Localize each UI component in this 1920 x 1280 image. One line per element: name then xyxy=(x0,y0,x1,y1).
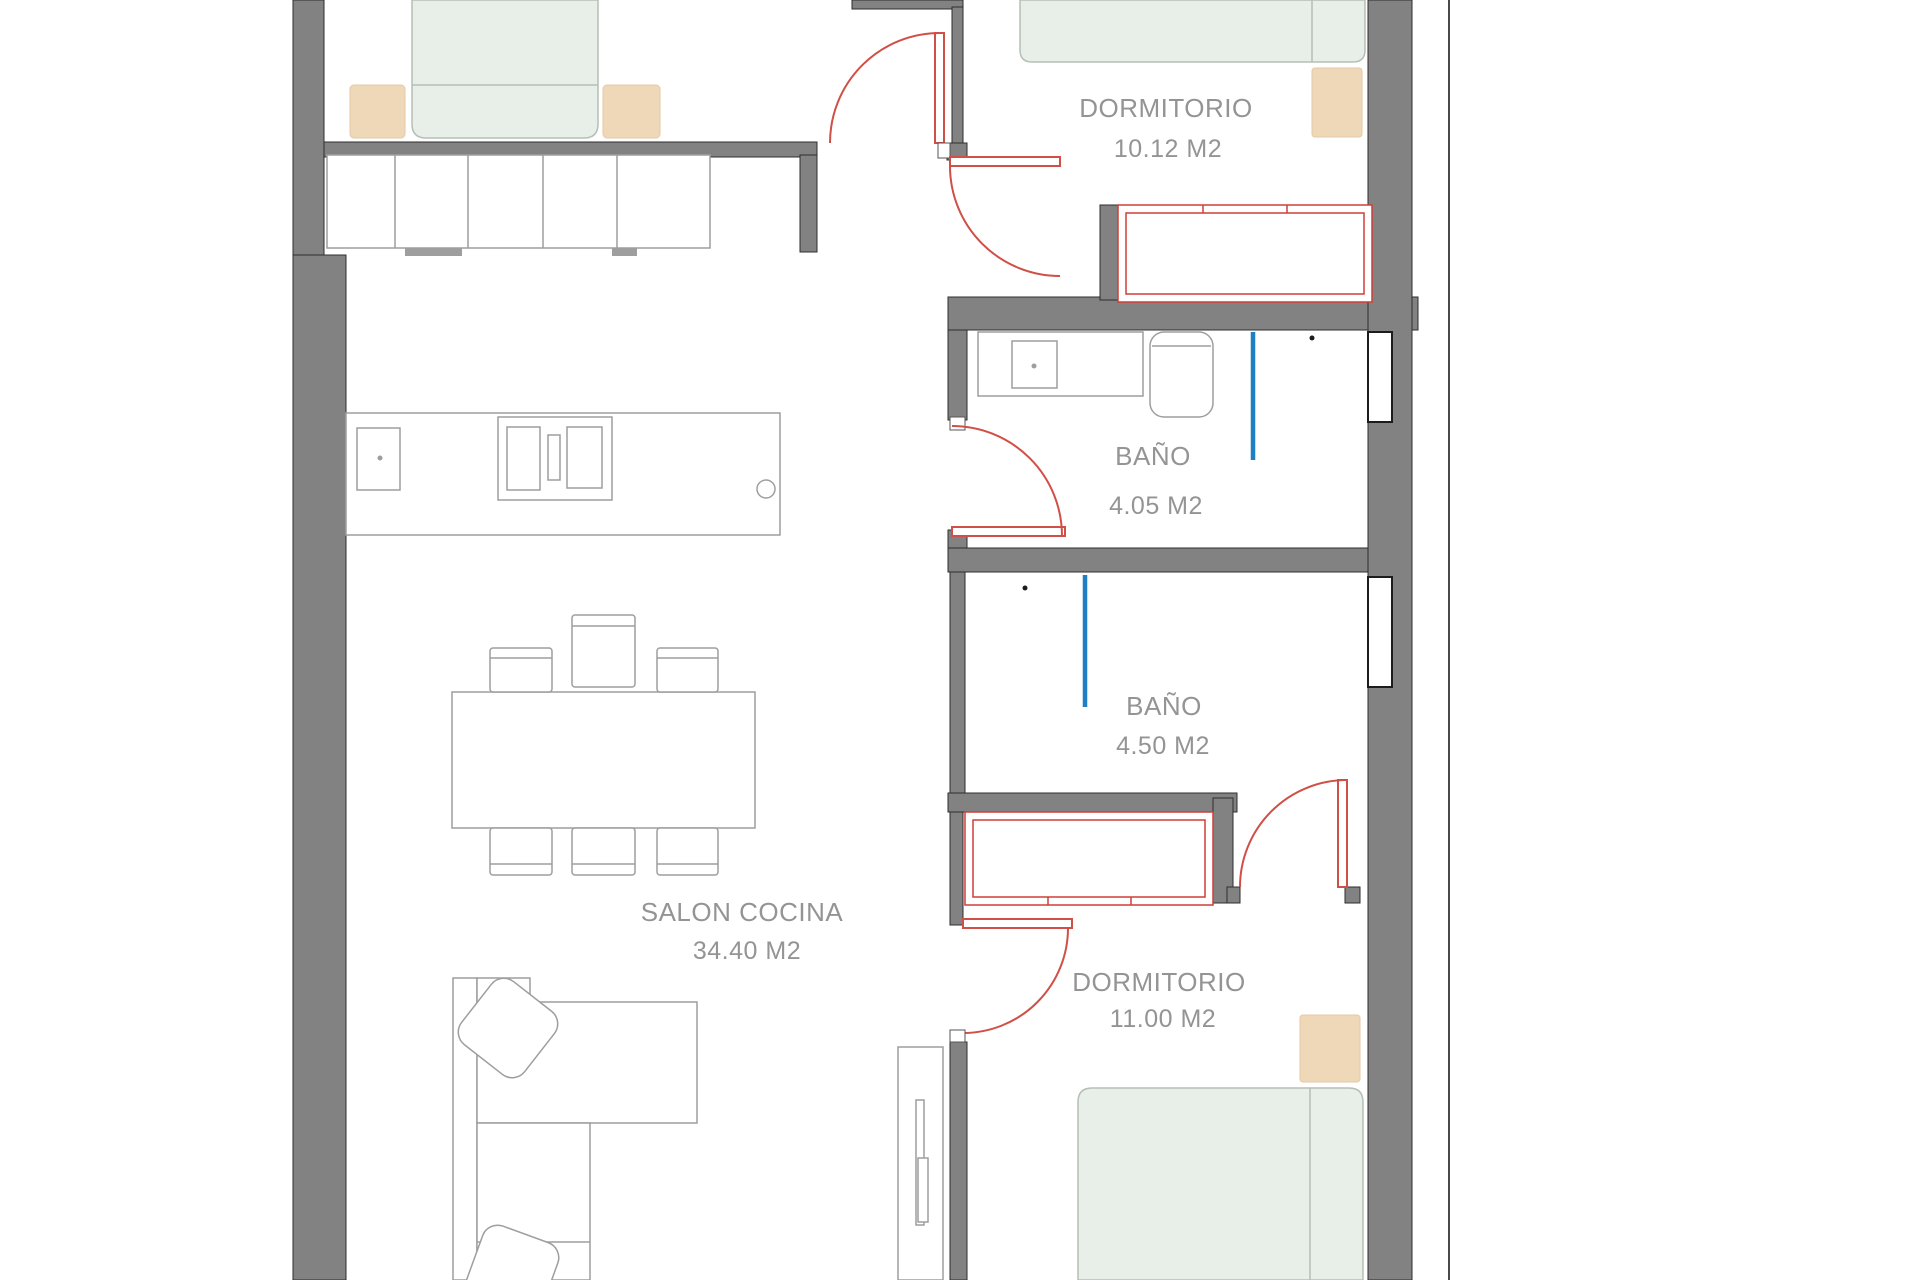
drain-dot xyxy=(1023,586,1028,591)
wall-top-band xyxy=(852,0,963,9)
window xyxy=(1368,577,1392,687)
nightstand xyxy=(603,85,660,138)
sofa xyxy=(452,972,697,1280)
room-label: BAÑO xyxy=(1126,691,1202,721)
washbasin-counter xyxy=(978,332,1143,396)
door-leaf-bathroom1 xyxy=(952,527,1065,536)
room-label: DORMITORIO xyxy=(1072,967,1246,997)
nightstand xyxy=(1312,68,1362,137)
nightstand xyxy=(350,85,405,138)
floor-plan-drawing: DORMITORIO 10.12 M2 BAÑO 4.05 M2 BAÑO 4.… xyxy=(0,0,1920,1280)
nightstand xyxy=(1300,1015,1360,1082)
closet-handle xyxy=(405,248,462,256)
room-area-label: 11.00 M2 xyxy=(1110,1005,1216,1033)
dining-table xyxy=(452,692,755,828)
drain-dot xyxy=(1310,336,1315,341)
wall-stub-vestibule-west xyxy=(800,155,817,252)
bed xyxy=(1078,1088,1363,1280)
chair xyxy=(490,648,552,692)
door-swing-dormitorio2 xyxy=(1240,780,1347,887)
wall-salon-bath2 xyxy=(950,572,965,793)
room-label: SALON COCINA xyxy=(641,897,844,927)
wardrobe-red-inner xyxy=(973,820,1205,897)
door-leaf-salon-corridor xyxy=(963,919,1072,928)
window xyxy=(1368,332,1392,422)
room-area-label: 34.40 M2 xyxy=(693,937,801,965)
wall-left-lower xyxy=(293,255,346,1280)
dining-set xyxy=(452,615,755,875)
sink-basin-right xyxy=(567,427,602,488)
sink-basin-left xyxy=(507,427,540,490)
bed xyxy=(1020,0,1365,62)
door-jamb xyxy=(950,1030,965,1042)
sink-divider xyxy=(548,435,560,480)
floor-plan-page: DORMITORIO 10.12 M2 BAÑO 4.05 M2 BAÑO 4.… xyxy=(0,0,1920,1280)
wardrobe-closet xyxy=(327,155,710,248)
door-jamb xyxy=(950,417,965,430)
door-leaf-dormitorio2 xyxy=(1338,780,1347,887)
wall-stub-wardrobe1 xyxy=(1100,205,1118,300)
wall-salon-dorm2-upper xyxy=(950,812,963,925)
room-label: DORMITORIO xyxy=(1079,93,1253,123)
room-label: BAÑO xyxy=(1115,441,1191,471)
tv-cabinet-panel xyxy=(918,1158,928,1222)
tv-cabinet xyxy=(898,1047,943,1280)
door-swing-bathroom1 xyxy=(952,426,1062,536)
wall-jamb-dorm2-left xyxy=(1227,887,1240,903)
washbasin-dot xyxy=(1032,364,1037,369)
kitchen-island xyxy=(346,413,780,535)
chair xyxy=(657,828,718,875)
wall-left-upper xyxy=(293,0,324,256)
door-jamb xyxy=(938,143,950,158)
wall-vestibule-stub xyxy=(952,7,963,143)
wall-salon-dorm2-lower xyxy=(950,1042,967,1280)
door-swing-salon-corridor xyxy=(963,928,1068,1033)
bedroom1-furniture xyxy=(327,0,710,256)
wall-bath1-bath2 xyxy=(948,548,1372,572)
chair xyxy=(657,648,718,692)
room-area-label: 4.05 M2 xyxy=(1109,492,1203,520)
wardrobe-red-inner xyxy=(1126,213,1364,294)
toilet xyxy=(1150,332,1213,417)
room-area-label: 10.12 M2 xyxy=(1114,135,1222,163)
room-area-label: 4.50 M2 xyxy=(1116,732,1210,760)
door-swing-bedroom1 xyxy=(830,33,940,143)
wall-jamb-dorm2-right xyxy=(1345,887,1360,903)
door-leaf-dormitorio1 xyxy=(950,157,1060,166)
chair xyxy=(490,828,552,875)
door-swing-dormitorio1 xyxy=(950,166,1060,276)
bed xyxy=(412,0,598,138)
wall-salon-bath1-upper xyxy=(948,330,967,420)
cooktop-dot xyxy=(378,456,383,461)
wall-bath2-south xyxy=(948,793,1237,812)
closet-handle xyxy=(612,248,637,256)
dormitorio2-furniture xyxy=(1078,1015,1363,1280)
door-leaf-bedroom1 xyxy=(935,33,944,143)
chair xyxy=(572,828,635,875)
